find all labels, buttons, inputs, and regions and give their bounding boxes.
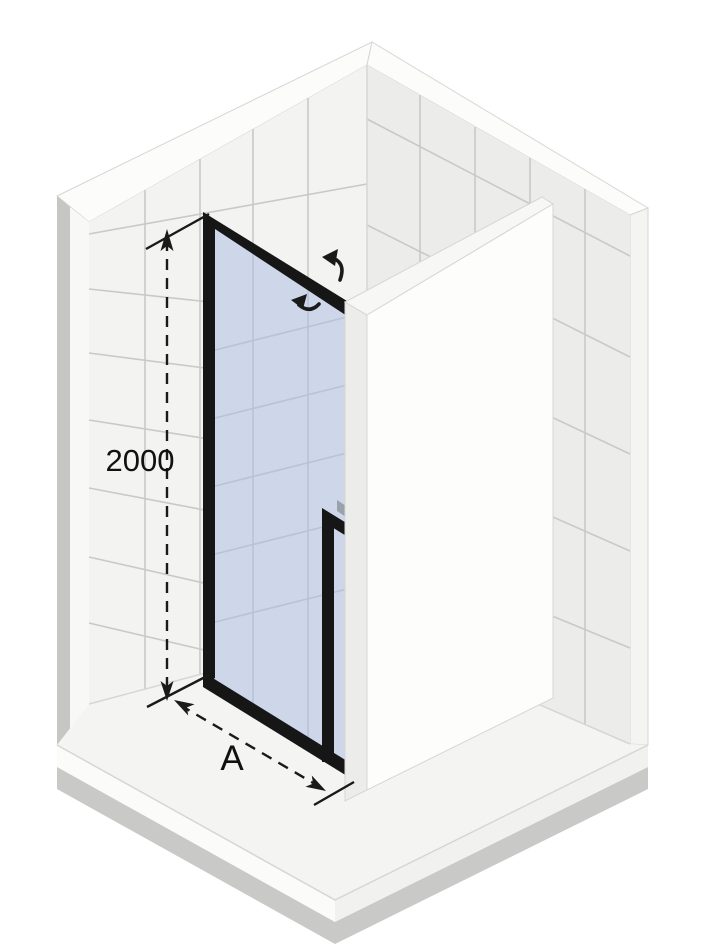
diagram-canvas: 2000 A [0, 0, 709, 950]
door-handle-bar[interactable] [322, 514, 334, 762]
left-wall-edge-face [70, 207, 89, 737]
side-panel-edge-face [345, 302, 367, 801]
width-dimension-label: A [220, 739, 244, 778]
height-dimension-label: 2000 [106, 443, 175, 478]
shower-door-technical-diagram: 2000 A [0, 0, 709, 950]
right-wall-edge-face [630, 208, 648, 745]
left-wall-side-face [57, 196, 70, 745]
door-hinge-stile [203, 212, 215, 687]
shower-door [203, 212, 349, 776]
side-panel [345, 197, 553, 801]
